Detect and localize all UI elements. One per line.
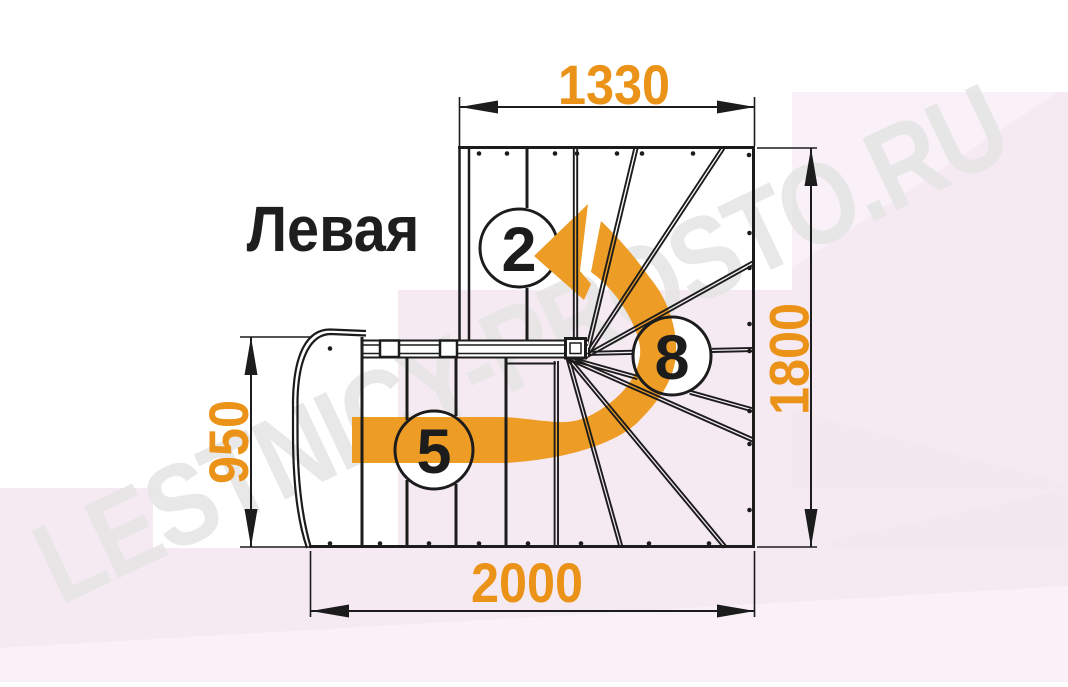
svg-text:1800: 1800: [759, 303, 821, 415]
svg-text:2: 2: [501, 215, 536, 285]
svg-text:2000: 2000: [471, 553, 583, 615]
svg-text:1330: 1330: [558, 55, 670, 117]
svg-text:Левая: Левая: [247, 193, 420, 264]
svg-text:950: 950: [199, 400, 261, 484]
svg-text:5: 5: [416, 417, 451, 487]
svg-text:8: 8: [654, 323, 689, 393]
